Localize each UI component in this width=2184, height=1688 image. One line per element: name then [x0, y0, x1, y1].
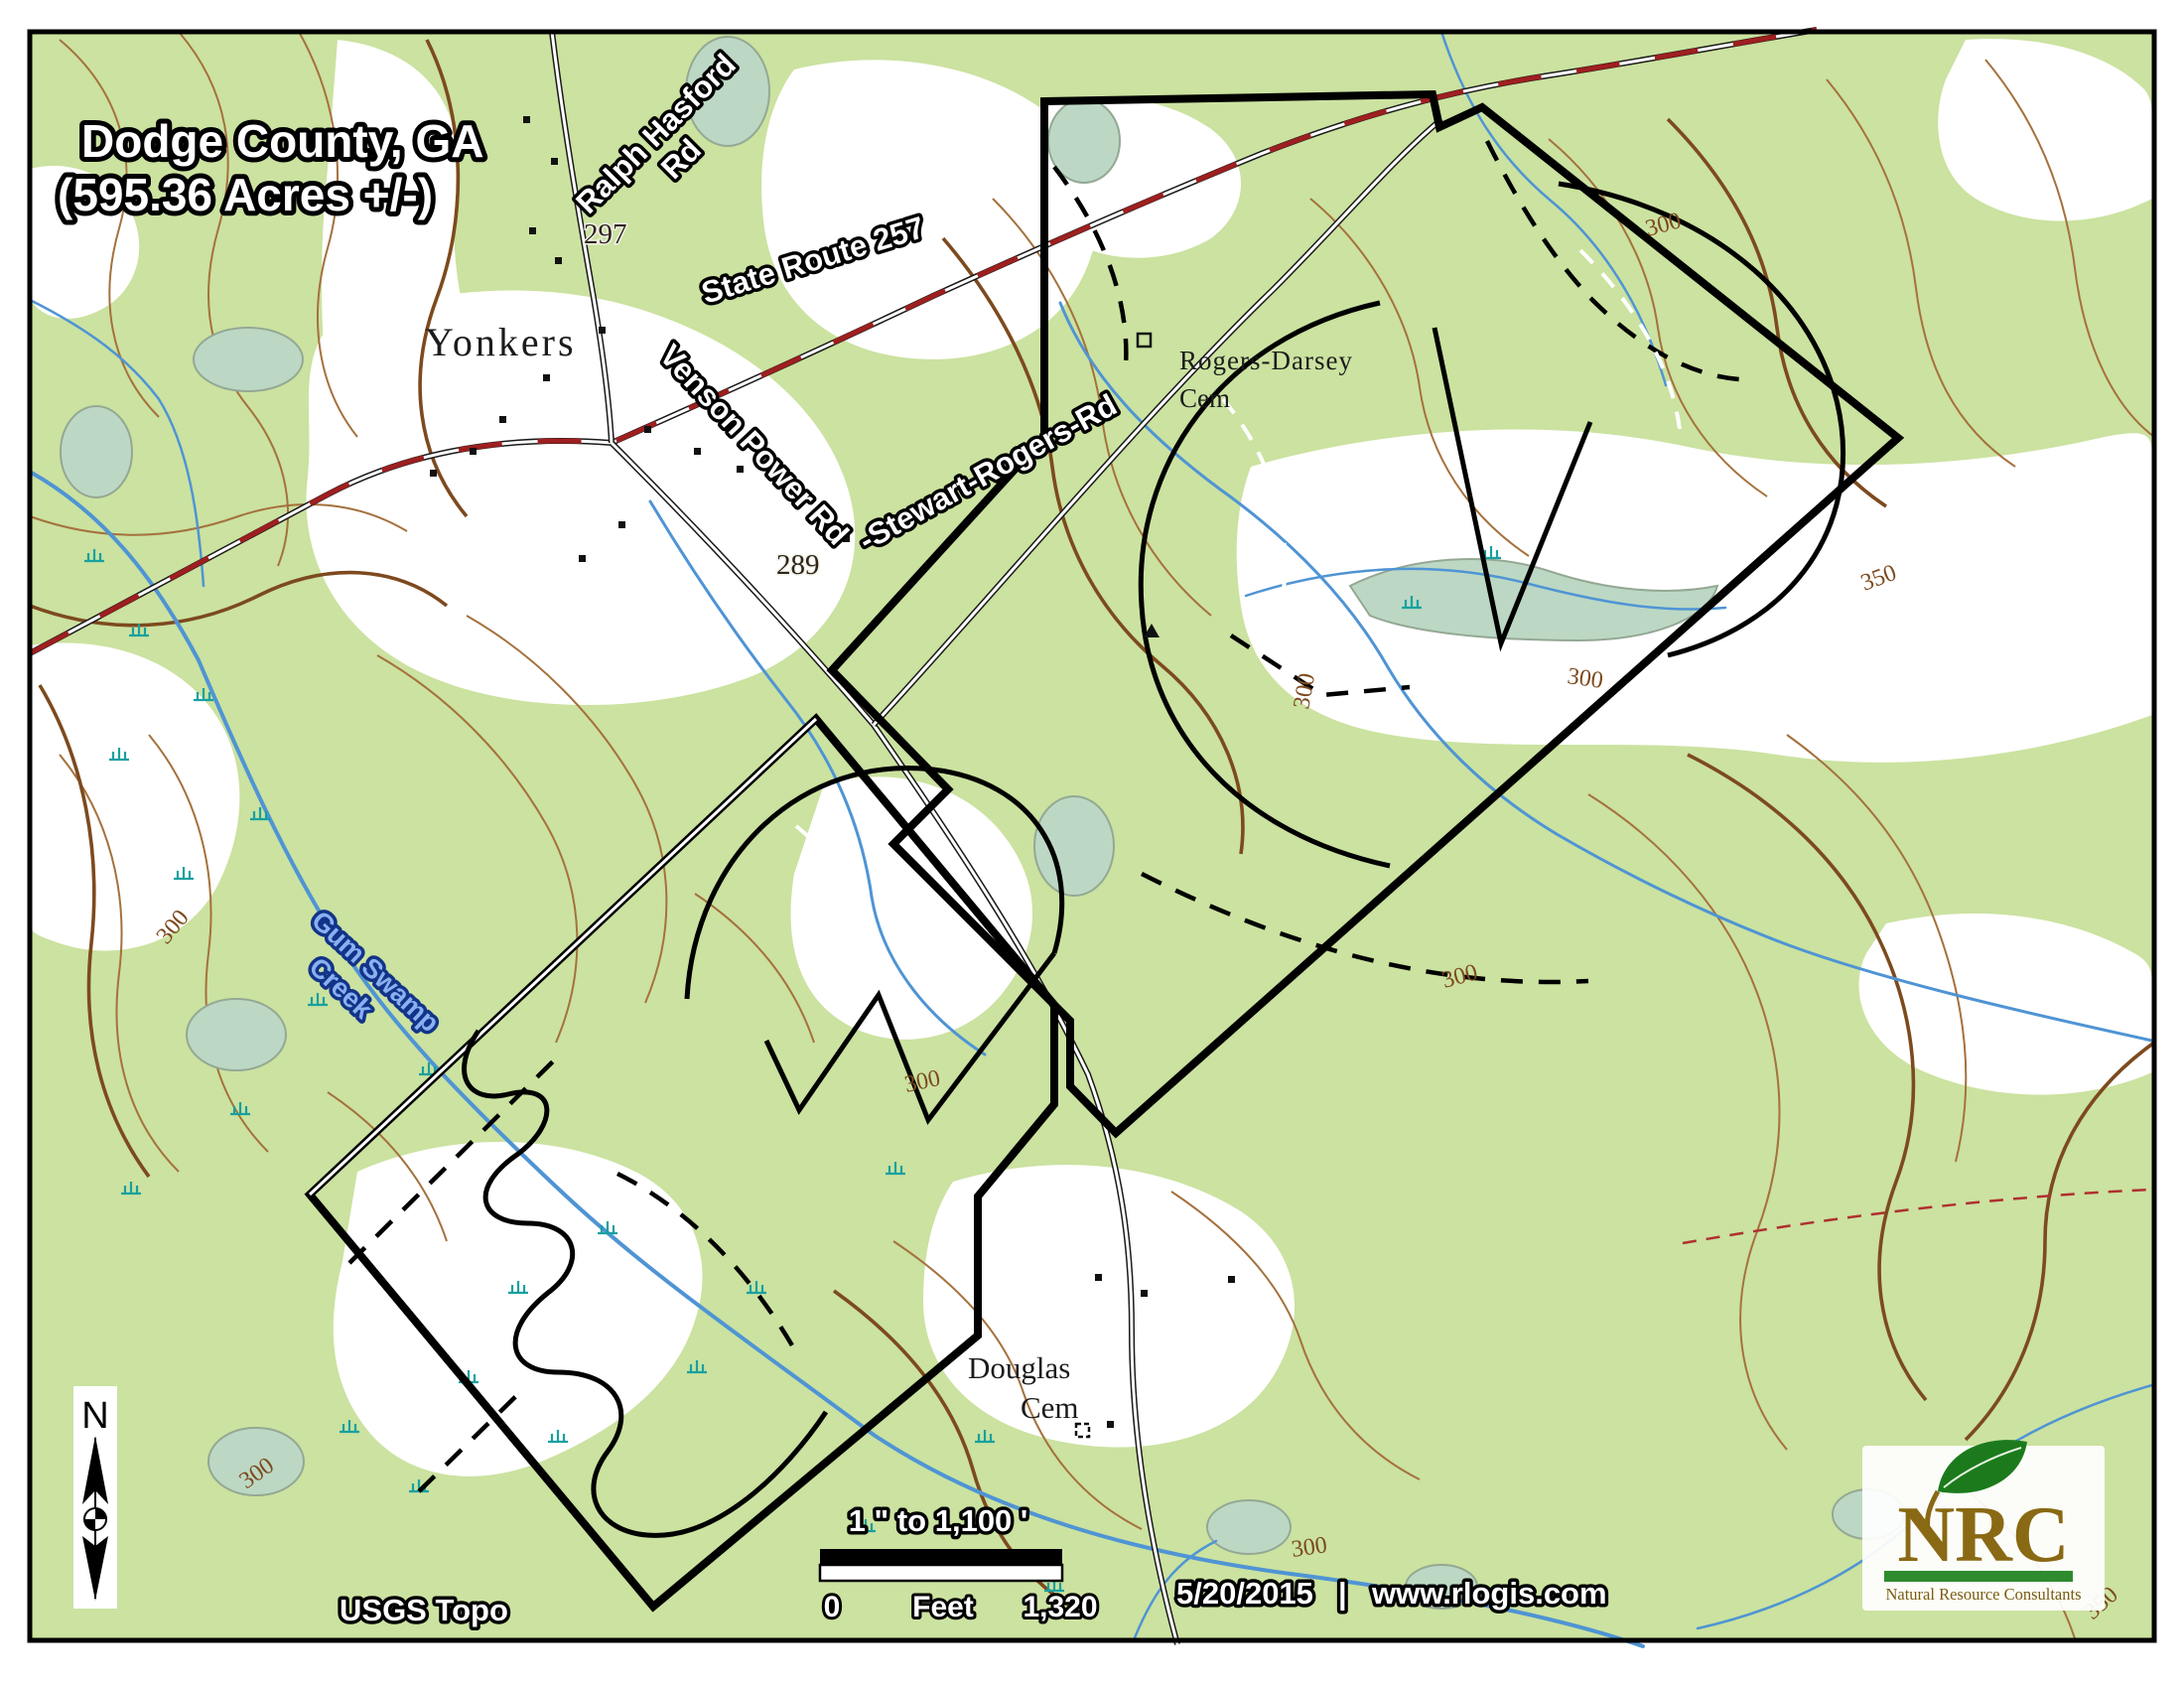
- north-arrow: N: [73, 1386, 117, 1609]
- date-label: 5/20/2015: [1176, 1576, 1313, 1611]
- cemetery-label-rogers-darsey: Rogers-Darsey: [1179, 346, 1353, 375]
- scale-max-label: 1,320: [1023, 1591, 1097, 1623]
- scale-zero-label: 0: [824, 1591, 841, 1623]
- website-label: www.rlogis.com: [1371, 1576, 1607, 1611]
- source-label: USGS Topo: [340, 1593, 508, 1627]
- scale-unit-label: Feet: [912, 1591, 974, 1623]
- contour-label-300: 300: [1290, 1532, 1328, 1563]
- place-label-yonkers: Yonkers: [425, 320, 577, 364]
- logo-green-bar: [1884, 1571, 2073, 1582]
- topo-map-page: Dodge County, GA (595.36 Acres +/-) Ralp…: [0, 0, 2184, 1688]
- logo-acronym: NRC: [1897, 1491, 2069, 1579]
- scale-ratio-label: 1 " to 1,100 ': [849, 1503, 1028, 1538]
- cemetery-label-douglas: Douglas: [968, 1350, 1070, 1385]
- cemetery-label-douglas-cem: Cem: [1021, 1390, 1079, 1425]
- contour-label-297: 297: [584, 218, 627, 250]
- north-label: N: [81, 1395, 108, 1437]
- map-title-line2: (595.36 Acres +/-): [58, 169, 433, 220]
- contour-label-300: 300: [1566, 663, 1604, 694]
- topo-map: Dodge County, GA (595.36 Acres +/-) Ralp…: [0, 0, 2184, 1688]
- cemetery-label-rogers-darsey-cem: Cem: [1179, 383, 1230, 413]
- contour-label-289: 289: [776, 549, 820, 581]
- scale-bar-white: [820, 1565, 1062, 1581]
- nrc-logo: NRC Natural Resource Consultants: [1862, 1440, 2105, 1611]
- map-title-line1: Dodge County, GA: [81, 115, 483, 167]
- scale-bar-black: [820, 1549, 1062, 1565]
- logo-tagline: Natural Resource Consultants: [1885, 1585, 2081, 1604]
- footer-separator: |: [1338, 1576, 1347, 1611]
